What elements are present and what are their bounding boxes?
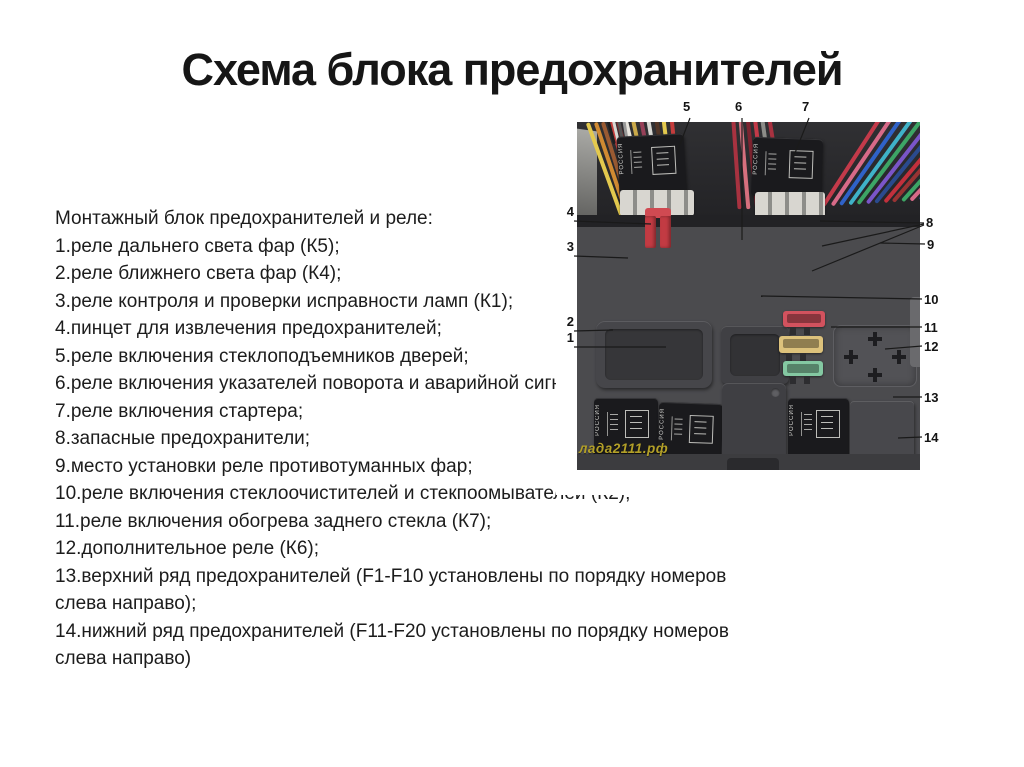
callout-1: 1 [558, 331, 574, 345]
callout-14: 14 [924, 431, 938, 445]
relay-pin-marks [630, 149, 646, 174]
callout-6: 6 [735, 100, 742, 114]
box-bottom-notch [727, 458, 779, 470]
relay-brand-label: РОССИЯ [618, 142, 630, 174]
spare-fuse-green [783, 361, 823, 376]
relay-5: РОССИЯ [616, 133, 686, 196]
relay-3 [596, 321, 712, 388]
relay-7: РОССИЯ [751, 137, 823, 198]
legend-item: 14.нижний ряд предохранителей (F11-F20 у… [55, 618, 755, 673]
fuse-tweezers [643, 208, 673, 248]
watermark: лада2111.рф [579, 441, 668, 456]
callout-3: 3 [558, 240, 574, 254]
fuse-box-photo: РОССИЯ РОССИЯ [577, 122, 920, 470]
legend-item: 12.дополнительное реле (К6); [55, 535, 755, 563]
callout-7: 7 [802, 100, 809, 114]
page-title: Схема блока предохранителей [0, 44, 1024, 96]
callout-10: 10 [924, 293, 938, 307]
socket-slot [868, 368, 882, 382]
callout-5: 5 [683, 100, 690, 114]
spare-fuse-red [783, 311, 825, 327]
socket-slot [844, 350, 858, 364]
fuse-box-figure: РОССИЯ РОССИЯ [556, 100, 950, 495]
legend-item: 13.верхний ряд предохранителей (F1-F10 у… [55, 563, 755, 618]
callout-9: 9 [927, 238, 934, 252]
legend-item: 11.реле включения обогрева заднего стекл… [55, 508, 755, 536]
relay-6 [721, 326, 789, 384]
socket-slot [892, 350, 906, 364]
relay-socket-white [755, 192, 825, 217]
relay-pin-marks [765, 151, 781, 176]
socket-slot [868, 332, 882, 346]
photo-top-section: РОССИЯ РОССИЯ [577, 122, 920, 217]
box-edge [577, 215, 920, 227]
callout-8: 8 [926, 216, 933, 230]
callout-11: 11 [924, 321, 938, 335]
slide: { "page": { "title": "Схема блока предох… [0, 0, 1024, 767]
callout-4: 4 [558, 205, 574, 219]
spare-fuse-yellow [779, 336, 823, 353]
relay-circuit-icon [651, 146, 676, 175]
empty-relay-socket-9 [833, 325, 917, 387]
callout-13: 13 [924, 391, 938, 405]
box-side-tab [910, 297, 920, 367]
relay-circuit-icon [789, 150, 814, 179]
relay-brand-label: РОССИЯ [753, 143, 764, 175]
callout-12: 12 [924, 340, 938, 354]
fuse-box-body: РОССИЯ РОССИЯ РОССИЯ [577, 217, 920, 470]
callout-2: 2 [558, 315, 574, 329]
